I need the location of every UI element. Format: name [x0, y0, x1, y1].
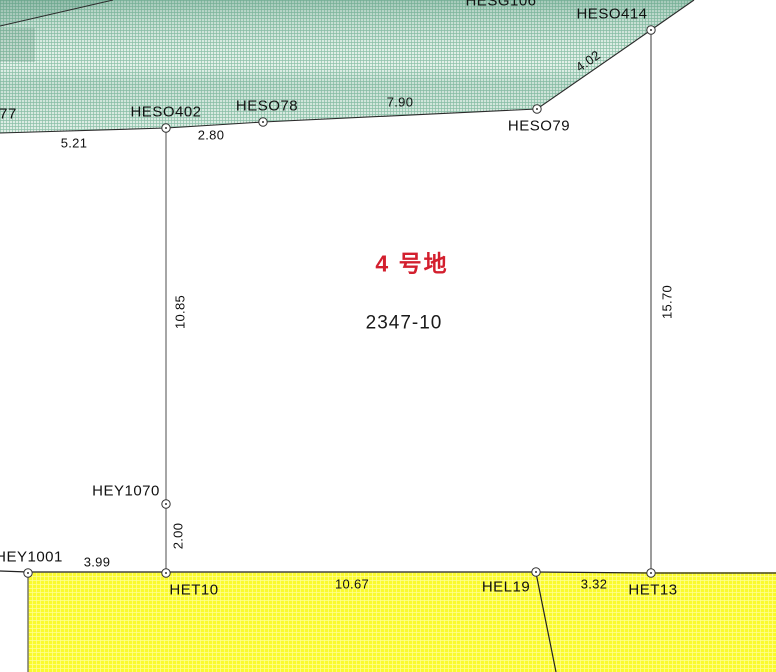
dimension-10-67: 10.67 — [335, 578, 369, 591]
dimension-2-00: 2.00 — [172, 523, 185, 550]
dimension-7-90: 7.90 — [387, 96, 414, 109]
point-label-het13: HET13 — [628, 583, 677, 598]
point-label-hesg106: HESG106 — [465, 0, 536, 9]
point-label-heso79: HESO79 — [508, 119, 570, 134]
dimension-5-21: 5.21 — [61, 137, 88, 150]
parcel-name-label: 4 号地 — [375, 253, 448, 276]
point-label-hey1001: HEY1001 — [0, 550, 63, 565]
point-label-heso414: HESO414 — [576, 7, 647, 22]
dimension-15-70: 15.70 — [661, 285, 674, 319]
green-dark-patch — [0, 28, 35, 62]
cadastral-survey-drawing: HESG106 HESO414 HESO402 HESO78 HESO79 77… — [0, 0, 776, 672]
point-label-heso78: HESO78 — [236, 99, 298, 114]
dimension-2-80: 2.80 — [198, 129, 225, 142]
parcel-number-label: 2347-10 — [366, 314, 443, 333]
dimension-10-85: 10.85 — [174, 295, 187, 329]
point-label-77: 77 — [0, 107, 17, 122]
point-label-het10: HET10 — [169, 583, 218, 598]
point-label-hel19: HEL19 — [482, 580, 530, 595]
dimension-3-32: 3.32 — [581, 578, 608, 591]
point-label-heso402: HESO402 — [130, 105, 201, 120]
point-label-hey1070: HEY1070 — [92, 484, 160, 499]
dimension-3-99: 3.99 — [84, 556, 111, 569]
